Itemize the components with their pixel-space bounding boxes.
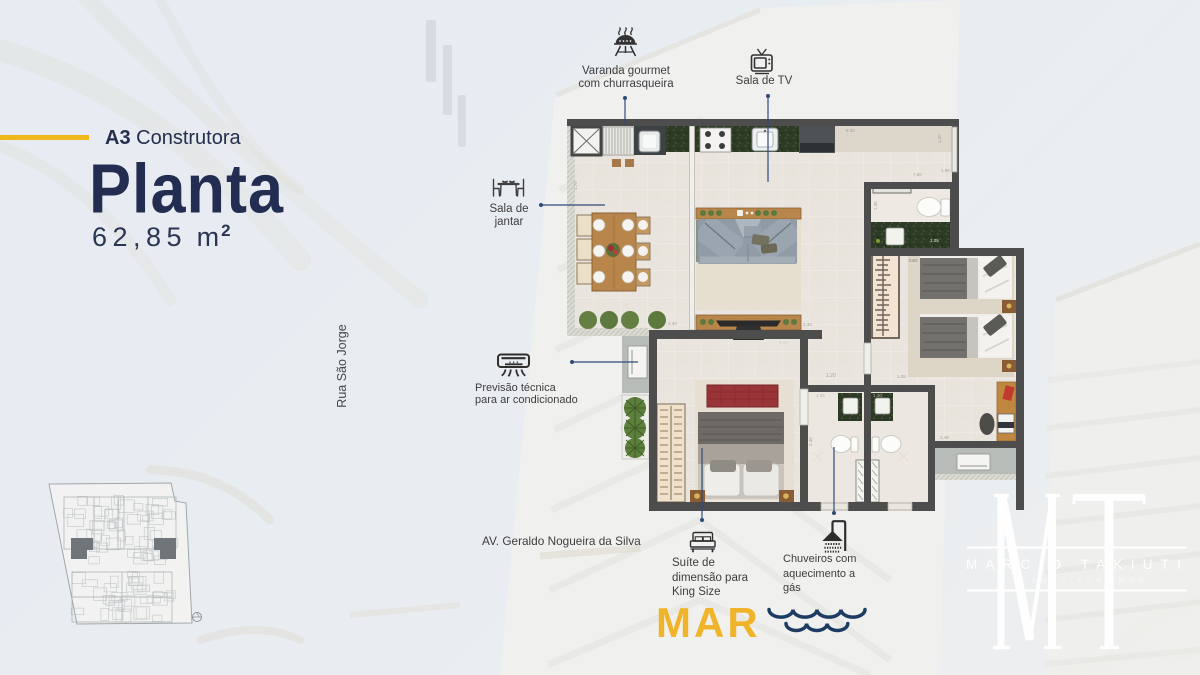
- svg-text:3.00: 3.00: [909, 258, 918, 263]
- svg-text:1.35: 1.35: [897, 374, 906, 379]
- svg-text:1.35: 1.35: [816, 393, 825, 398]
- svg-text:1.20: 1.20: [826, 373, 836, 379]
- svg-text:4.70: 4.70: [573, 181, 578, 190]
- svg-text:3.00: 3.00: [779, 340, 788, 345]
- svg-text:1.05: 1.05: [930, 238, 939, 243]
- svg-text:CONSULTOR IMOB: CONSULTOR IMOB: [1022, 578, 1148, 585]
- svg-text:2.40: 2.40: [808, 437, 813, 446]
- svg-text:1.30: 1.30: [873, 393, 882, 398]
- svg-text:2.40: 2.40: [668, 321, 677, 326]
- svg-text:2.40: 2.40: [803, 322, 812, 327]
- svg-text:1.90: 1.90: [941, 168, 950, 173]
- svg-text:1.35: 1.35: [873, 201, 878, 210]
- svg-text:MARCIO TAKIUTI: MARCIO TAKIUTI: [966, 557, 1189, 572]
- svg-text:7.60: 7.60: [913, 172, 922, 177]
- svg-text:1.46: 1.46: [940, 435, 949, 440]
- svg-text:5.30: 5.30: [846, 128, 855, 133]
- svg-text:1.20: 1.20: [937, 134, 942, 143]
